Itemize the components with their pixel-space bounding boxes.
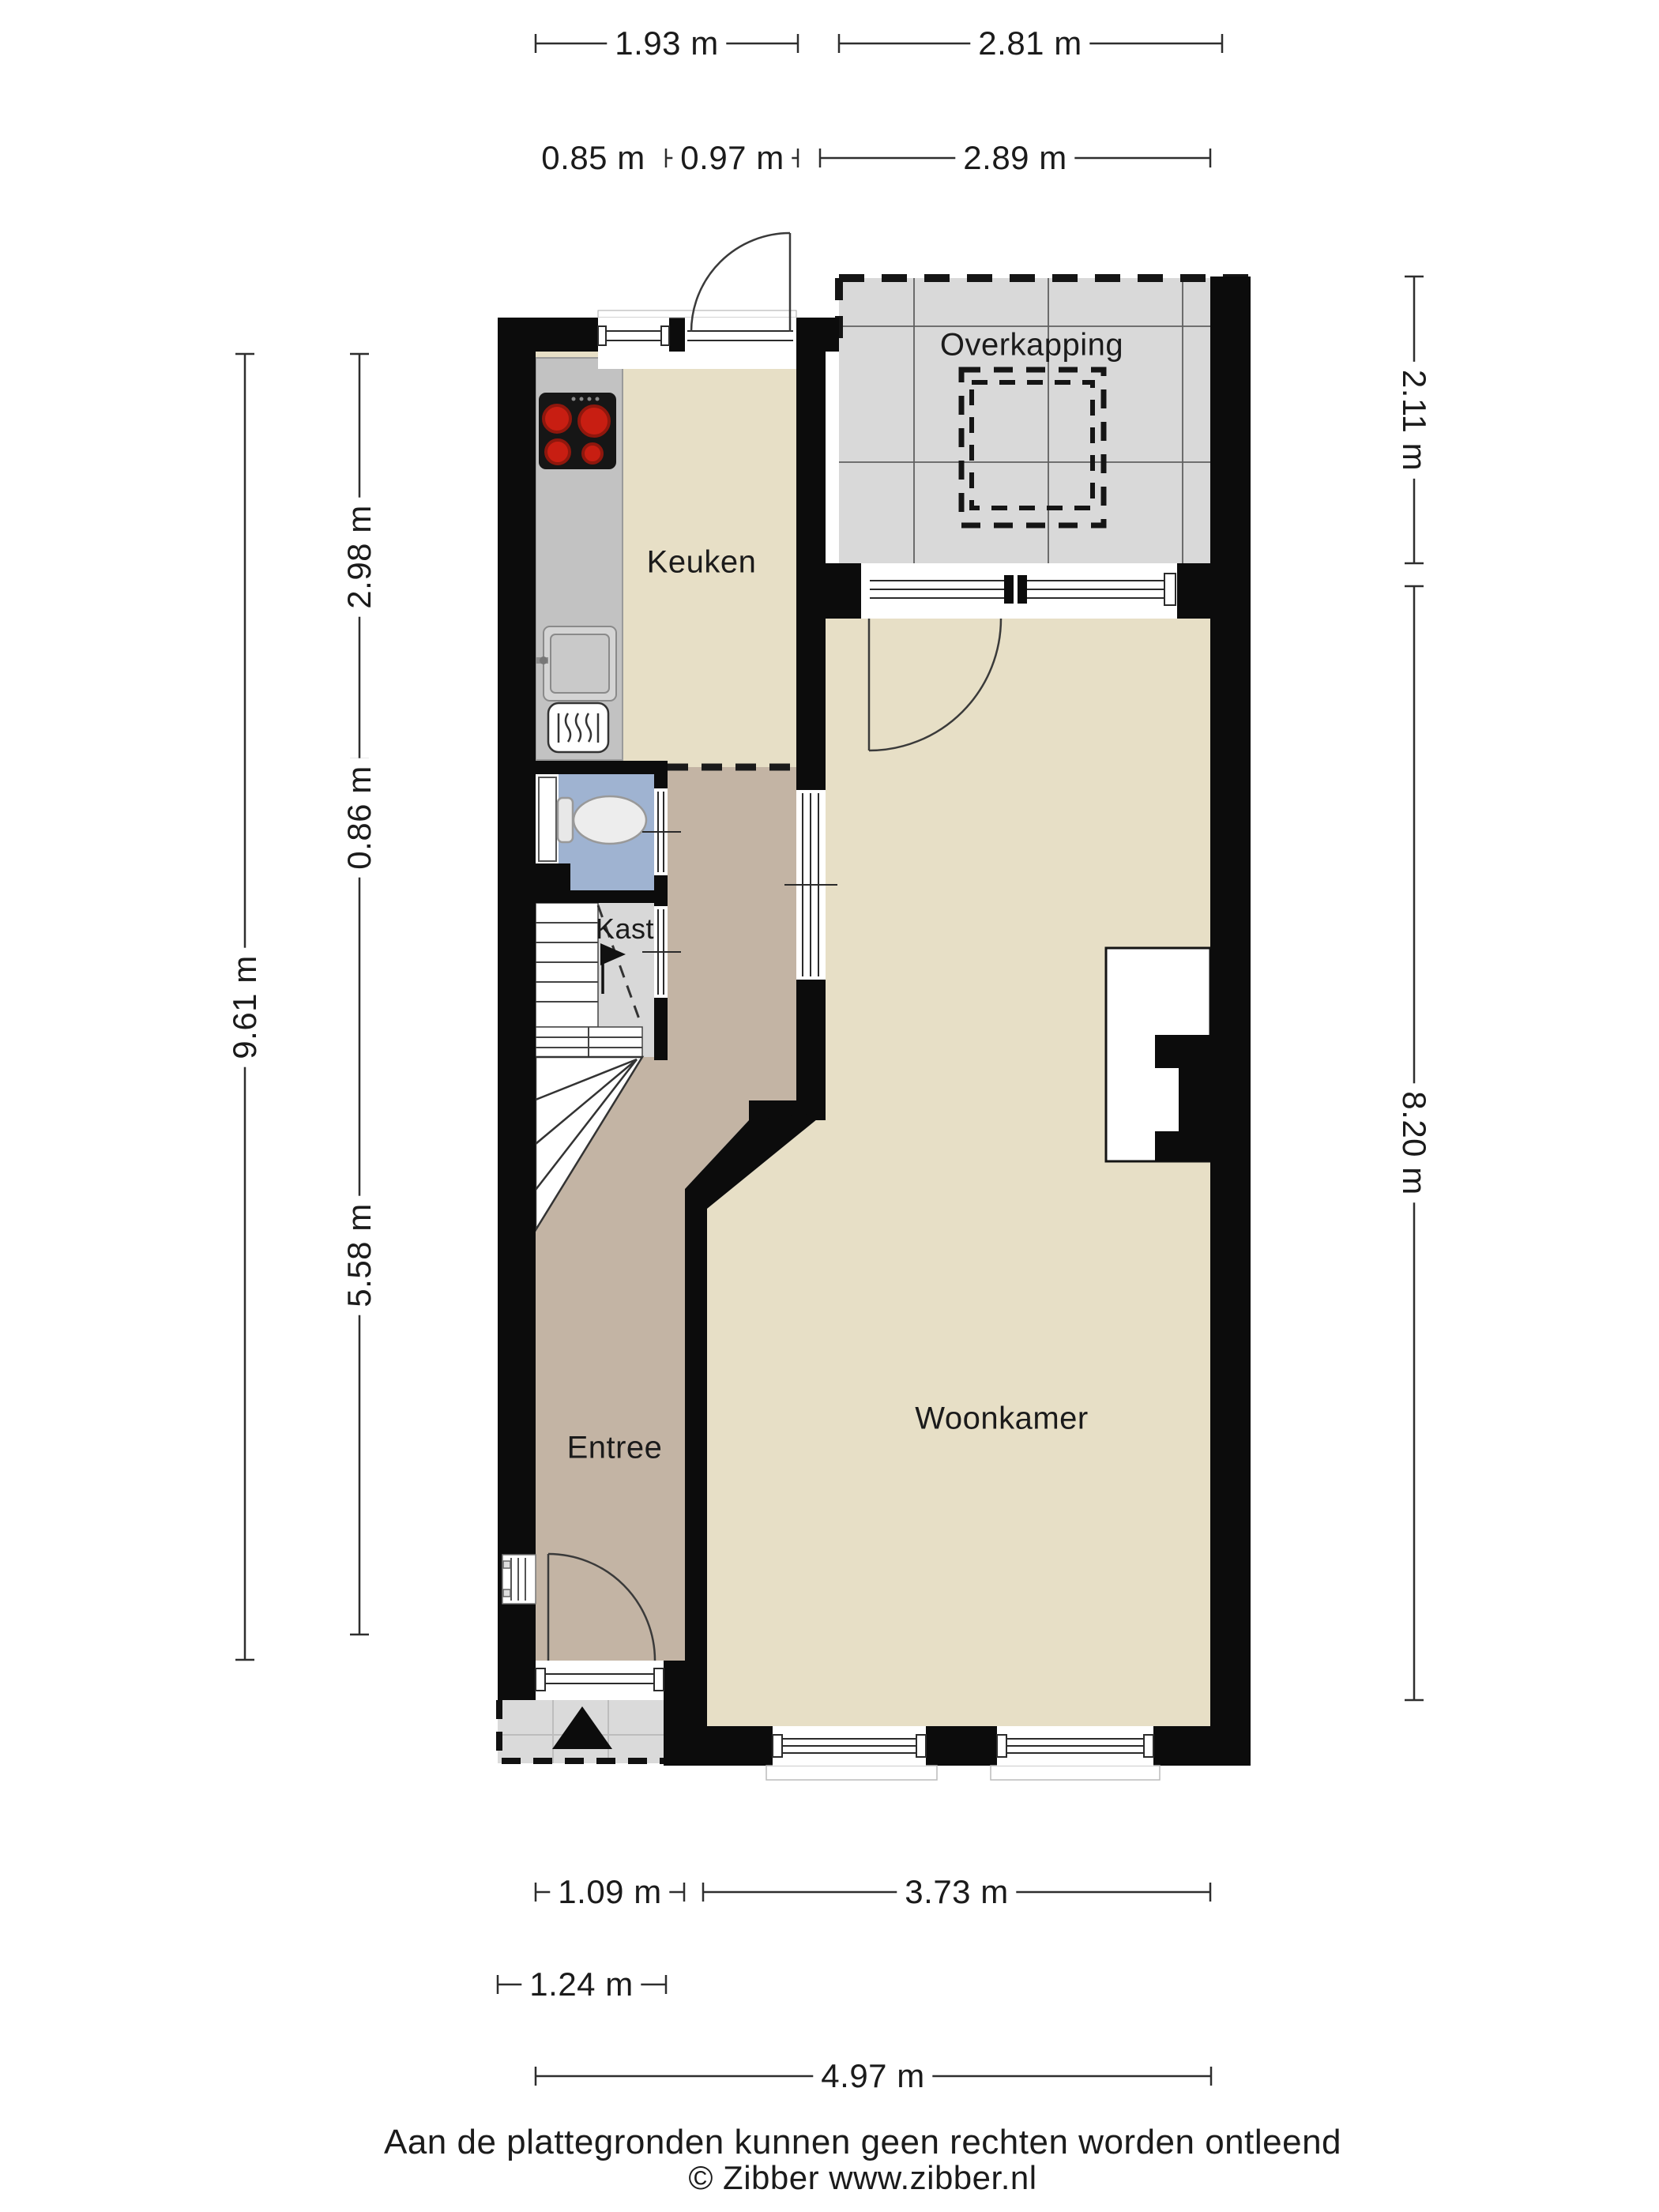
dim-label-left-298: 2.98 m [342,497,377,616]
west-wall-window [502,1555,536,1604]
dim-label-bottom-373: 3.73 m [897,1875,1016,1909]
dim-label-top-097: 0.97 m [672,141,792,175]
footer-copyright: © Zibber www.zibber.nl [688,2159,1036,2197]
sink-icon [534,626,616,701]
dim-label-top-289: 2.89 m [955,141,1074,175]
toilet-icon [558,796,646,844]
room-label-entree: Entree [567,1431,663,1466]
fireplace [1106,948,1210,1161]
floorplan-page: Keuken Overkapping Kast Entree Woonkamer… [0,0,1659,2212]
dim-label-bottom-124: 1.24 m [521,1967,641,2002]
dim-label-left-558: 5.58 m [342,1195,377,1315]
stove-icon [539,393,616,469]
dim-label-right-820: 8.20 m [1397,1083,1431,1202]
dim-label-left-961: 9.61 m [228,947,262,1066]
toilet-door [539,777,556,861]
kitchen-top-window-door [598,233,796,369]
room-label-keuken: Keuken [647,545,757,581]
room-label-overkapping: Overkapping [940,328,1123,363]
dim-label-right-211: 2.11 m [1397,362,1431,479]
dim-label-top-085: 0.85 m [533,141,653,175]
kitchen-counter [534,358,623,760]
room-label-woonkamer: Woonkamer [915,1401,1088,1437]
dim-label-left-086: 0.86 m [342,758,377,877]
room-label-kast: Kast [596,912,654,946]
footer-disclaimer: Aan de plattegronden kunnen geen rechten… [384,2123,1341,2162]
dishwasher-icon [548,703,608,752]
dim-label-bottom-109: 1.09 m [550,1875,669,1909]
dim-label-top-193: 1.93 m [607,26,726,61]
dim-label-bottom-497: 4.97 m [813,2059,932,2093]
dim-label-top-281: 2.81 m [970,26,1089,61]
